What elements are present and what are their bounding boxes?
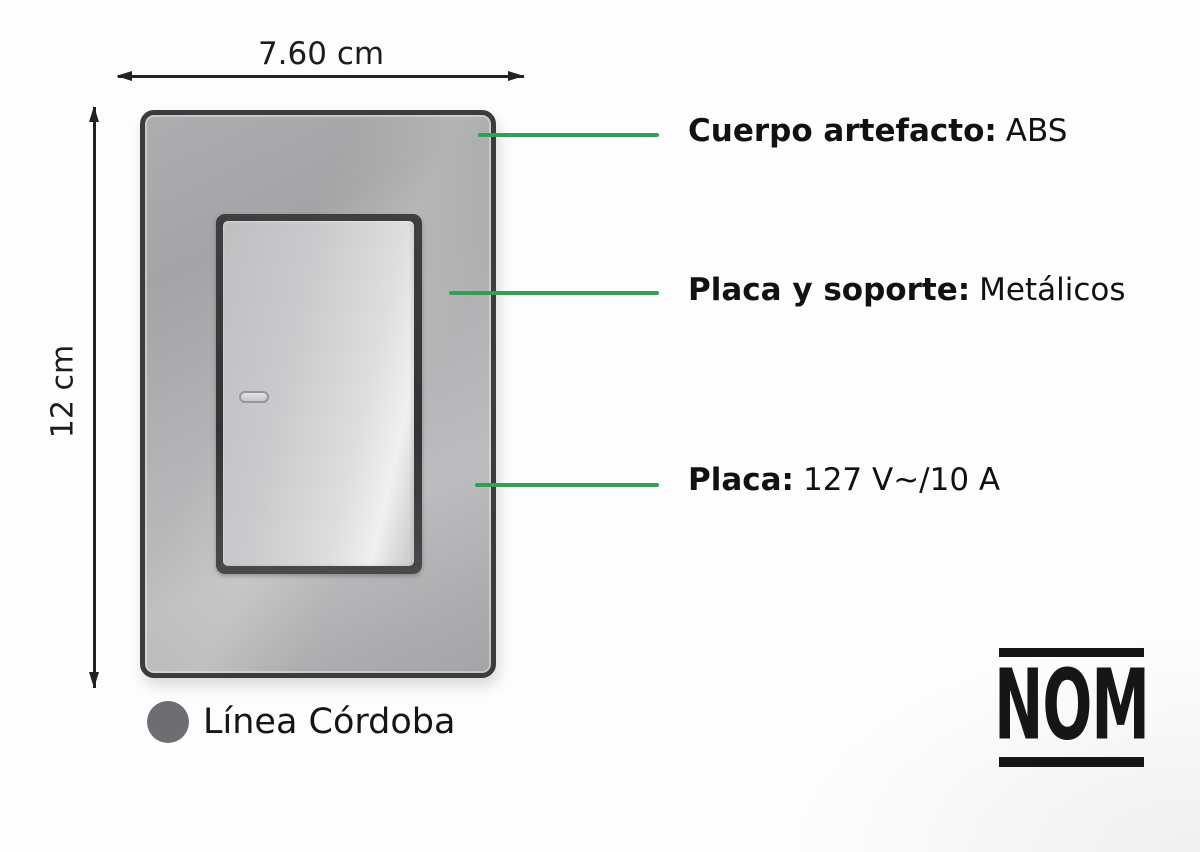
height-arrow-up-icon [89, 106, 99, 122]
rocker-button [223, 221, 414, 566]
callout-value: 127 V~/10 A [803, 462, 1000, 498]
callout-cuerpo-artefacto: Cuerpo artefacto:ABS [688, 113, 1067, 149]
callout-title: Placa y soporte: [688, 272, 970, 308]
callout-value: ABS [1006, 113, 1068, 149]
height-dimension-label: 12 cm [46, 312, 81, 472]
height-dimension-line [93, 107, 96, 688]
callout-line-placa [475, 483, 659, 487]
callout-line-cuerpo [478, 133, 659, 137]
callout-placa: Placa:127 V~/10 A [688, 462, 1000, 498]
width-dimension-label: 7.60 cm [118, 36, 524, 72]
callout-title: Cuerpo artefacto: [688, 113, 997, 149]
indicator-pill [239, 391, 269, 403]
callout-placa-y-soporte: Placa y soporte:Metálicos [688, 272, 1125, 308]
legend-color-dot [147, 701, 189, 743]
legend-label: Línea Córdoba [203, 702, 455, 742]
callout-value: Metálicos [979, 272, 1125, 308]
nom-logo: NOM [999, 646, 1144, 767]
width-arrow-left-icon [116, 71, 132, 81]
width-arrow-right-icon [508, 71, 524, 81]
callout-line-placa-soporte [449, 291, 659, 295]
height-arrow-down-icon [89, 672, 99, 688]
width-dimension-line [118, 75, 524, 78]
callout-title: Placa: [688, 462, 794, 498]
nom-logo-text: NOM [1000, 643, 1142, 769]
rocker-frame [216, 214, 422, 574]
nom-bottom-bar [999, 757, 1144, 767]
